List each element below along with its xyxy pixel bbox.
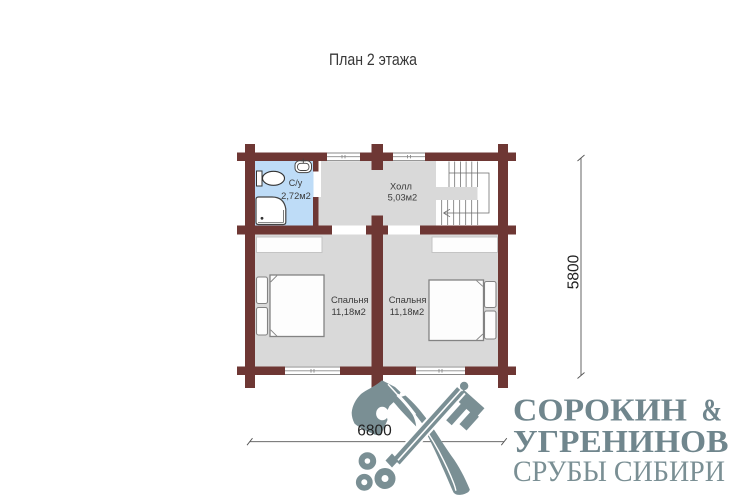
svg-text:&: & bbox=[702, 391, 723, 427]
svg-text:5800: 5800 bbox=[566, 254, 583, 289]
svg-text:СОРОКИН: СОРОКИН bbox=[513, 391, 687, 427]
svg-text:С/у: С/у bbox=[289, 178, 303, 188]
svg-text:Спальня: Спальня bbox=[331, 294, 369, 305]
svg-text:6800: 6800 bbox=[357, 422, 392, 439]
svg-text:Спальня: Спальня bbox=[389, 294, 427, 305]
svg-text:План 2 этажа: План 2 этажа bbox=[329, 50, 417, 69]
svg-text:5,03м2: 5,03м2 bbox=[388, 193, 418, 203]
svg-text:Холл: Холл bbox=[390, 181, 412, 191]
svg-text:УГРЕНИНОВ: УГРЕНИНОВ bbox=[513, 423, 729, 459]
svg-text:СРУБЫ СИБИРИ: СРУБЫ СИБИРИ bbox=[513, 455, 725, 488]
svg-text:11,18м2: 11,18м2 bbox=[331, 306, 365, 317]
svg-text:11,18м2: 11,18м2 bbox=[390, 306, 424, 317]
svg-text:2,72м2: 2,72м2 bbox=[281, 191, 311, 201]
